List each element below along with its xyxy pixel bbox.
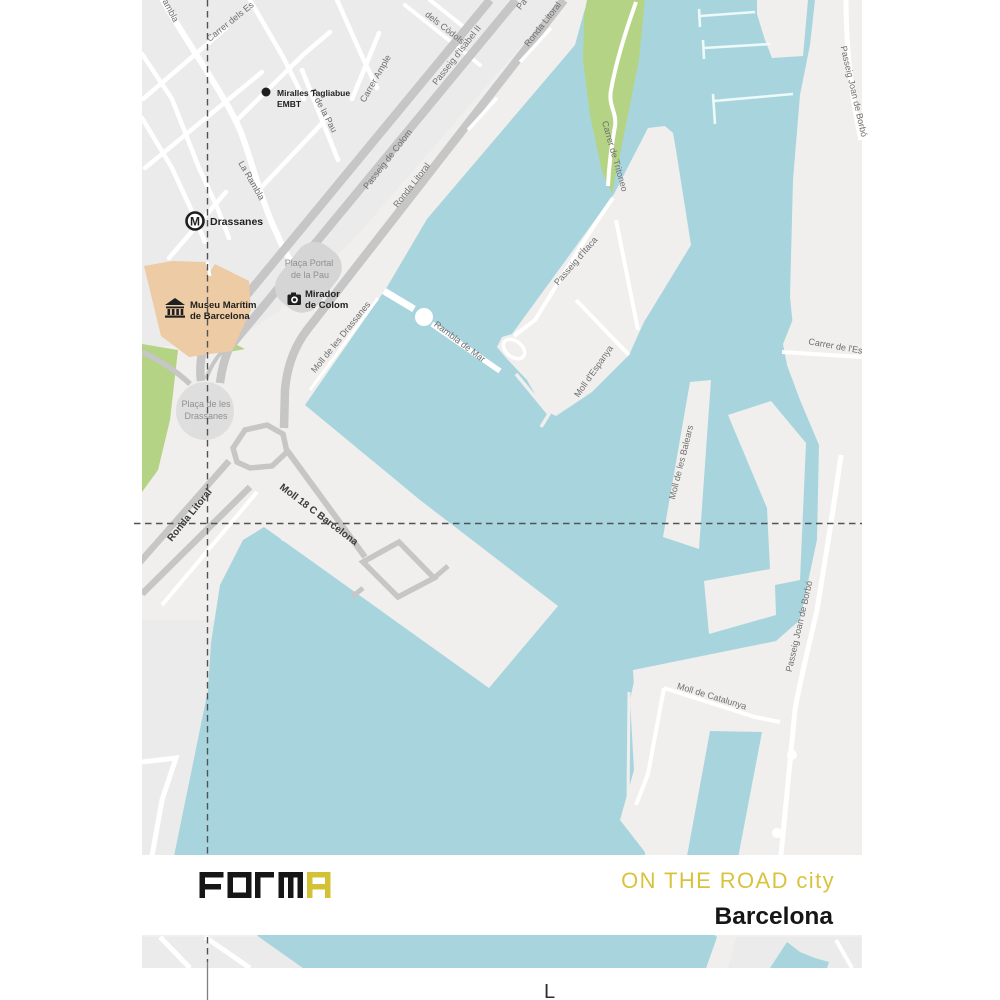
- svg-text:Mirador: Mirador: [305, 289, 340, 300]
- svg-text:de la Pau: de la Pau: [291, 270, 329, 280]
- svg-text:ON THE ROAD city: ON THE ROAD city: [621, 868, 835, 893]
- svg-text:Museu Marítim: Museu Marítim: [190, 300, 257, 311]
- svg-text:M: M: [190, 215, 200, 229]
- svg-text:Drassanes: Drassanes: [210, 216, 263, 228]
- svg-text:Miralles Tagliabue: Miralles Tagliabue: [277, 88, 350, 98]
- svg-text:de Barcelona: de Barcelona: [190, 311, 250, 322]
- svg-text:Barcelona: Barcelona: [715, 903, 834, 930]
- svg-text:Plaça Portal: Plaça Portal: [285, 258, 334, 268]
- svg-text:EMBT: EMBT: [277, 99, 302, 109]
- svg-text:de Colom: de Colom: [305, 300, 348, 311]
- svg-text:Plaça de les: Plaça de les: [181, 399, 231, 409]
- svg-text:Drassanes: Drassanes: [184, 411, 228, 421]
- svg-text:L: L: [544, 981, 555, 1000]
